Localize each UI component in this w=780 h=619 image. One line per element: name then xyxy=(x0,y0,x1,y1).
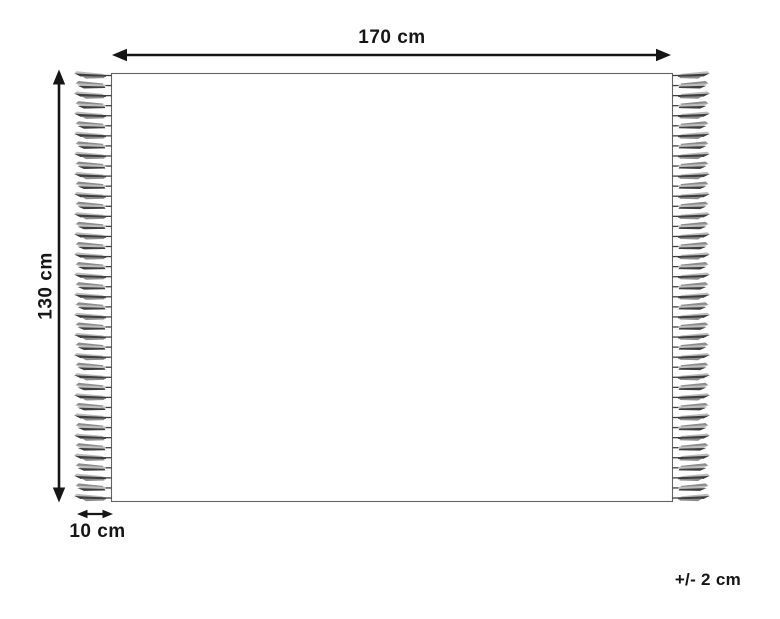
tassel xyxy=(74,494,112,501)
dimension-diagram: 170 cm 130 cm 10 cm +/- 2 cm xyxy=(0,0,780,619)
tassel xyxy=(673,252,711,259)
tassel xyxy=(76,322,112,330)
tassel xyxy=(673,91,711,98)
tassel xyxy=(673,322,709,330)
tassel xyxy=(74,333,112,340)
fringe-dimension-arrow xyxy=(77,510,113,519)
height-dimension-label: 130 cm xyxy=(37,252,56,319)
tassel xyxy=(76,222,112,230)
tassel xyxy=(76,161,112,169)
tassel xyxy=(673,232,711,239)
tassel xyxy=(76,101,112,109)
tassel xyxy=(76,81,112,89)
tassel xyxy=(673,152,711,159)
tassel xyxy=(673,373,711,380)
tassel xyxy=(74,132,112,139)
tassel xyxy=(673,242,709,250)
tassel xyxy=(673,302,709,310)
tassel xyxy=(673,293,711,300)
tassel xyxy=(673,161,709,169)
tassel xyxy=(673,222,709,230)
tassel xyxy=(76,463,112,471)
tolerance-label: +/- 2 cm xyxy=(675,571,741,588)
tassel xyxy=(76,363,112,371)
tassel xyxy=(673,343,709,351)
tassel xyxy=(76,262,112,270)
tassel xyxy=(76,121,112,128)
tassel xyxy=(76,242,112,250)
tassel xyxy=(673,463,709,471)
tassel xyxy=(74,192,112,199)
tassel xyxy=(673,353,711,360)
tassel xyxy=(673,333,711,340)
width-dimension-arrow xyxy=(112,49,671,61)
tassel xyxy=(673,363,709,371)
tassel xyxy=(74,413,112,420)
tassel xyxy=(74,112,112,119)
width-dimension-label: 170 cm xyxy=(112,28,672,47)
tassel xyxy=(673,182,709,190)
tassel xyxy=(673,282,709,290)
tassel xyxy=(76,202,112,210)
tassel xyxy=(673,172,711,179)
tassel xyxy=(673,494,711,501)
tassel xyxy=(673,272,711,279)
tassel xyxy=(673,313,711,320)
tassel xyxy=(673,433,711,440)
tassel xyxy=(74,474,112,481)
tassel xyxy=(673,141,709,149)
tassel xyxy=(74,454,112,461)
tassel xyxy=(74,71,112,78)
tassel xyxy=(673,443,709,451)
tassel xyxy=(74,433,112,440)
tassel xyxy=(673,112,711,119)
tassel xyxy=(673,71,711,78)
tassel xyxy=(673,423,709,431)
tassel xyxy=(74,373,112,380)
tassel xyxy=(673,192,711,199)
tassel xyxy=(74,393,112,400)
tassel xyxy=(76,383,112,391)
rug-outline xyxy=(112,74,673,502)
tassel xyxy=(673,393,711,400)
tassel xyxy=(76,423,112,431)
tassel xyxy=(76,343,112,351)
left-fringe xyxy=(74,71,112,501)
tassel xyxy=(76,443,112,451)
tassel xyxy=(76,141,112,149)
tassel xyxy=(74,293,112,300)
tassel xyxy=(74,91,112,98)
tassel xyxy=(673,454,711,461)
tassel xyxy=(76,483,112,491)
fringe-length-label: 10 cm xyxy=(55,522,140,541)
tassel xyxy=(673,121,709,128)
tassel xyxy=(673,212,711,219)
tassel xyxy=(673,81,709,89)
tassel xyxy=(74,152,112,159)
tassel xyxy=(673,262,709,270)
tassel xyxy=(673,483,709,491)
tassel xyxy=(74,252,112,259)
tassel xyxy=(673,413,711,420)
tassel xyxy=(673,202,709,210)
tassel xyxy=(74,172,112,179)
tassel xyxy=(673,474,711,481)
tassel xyxy=(76,182,112,190)
tassel xyxy=(76,282,112,290)
tassel xyxy=(673,132,711,139)
tassel xyxy=(74,353,112,360)
tassel xyxy=(74,313,112,320)
tassel xyxy=(76,302,112,310)
tassel xyxy=(74,272,112,279)
tassel xyxy=(74,232,112,239)
tassel xyxy=(673,101,709,109)
tassel xyxy=(76,403,112,411)
tassel xyxy=(673,383,709,391)
tassel xyxy=(673,403,709,411)
tassel xyxy=(74,212,112,219)
right-fringe xyxy=(673,71,711,501)
